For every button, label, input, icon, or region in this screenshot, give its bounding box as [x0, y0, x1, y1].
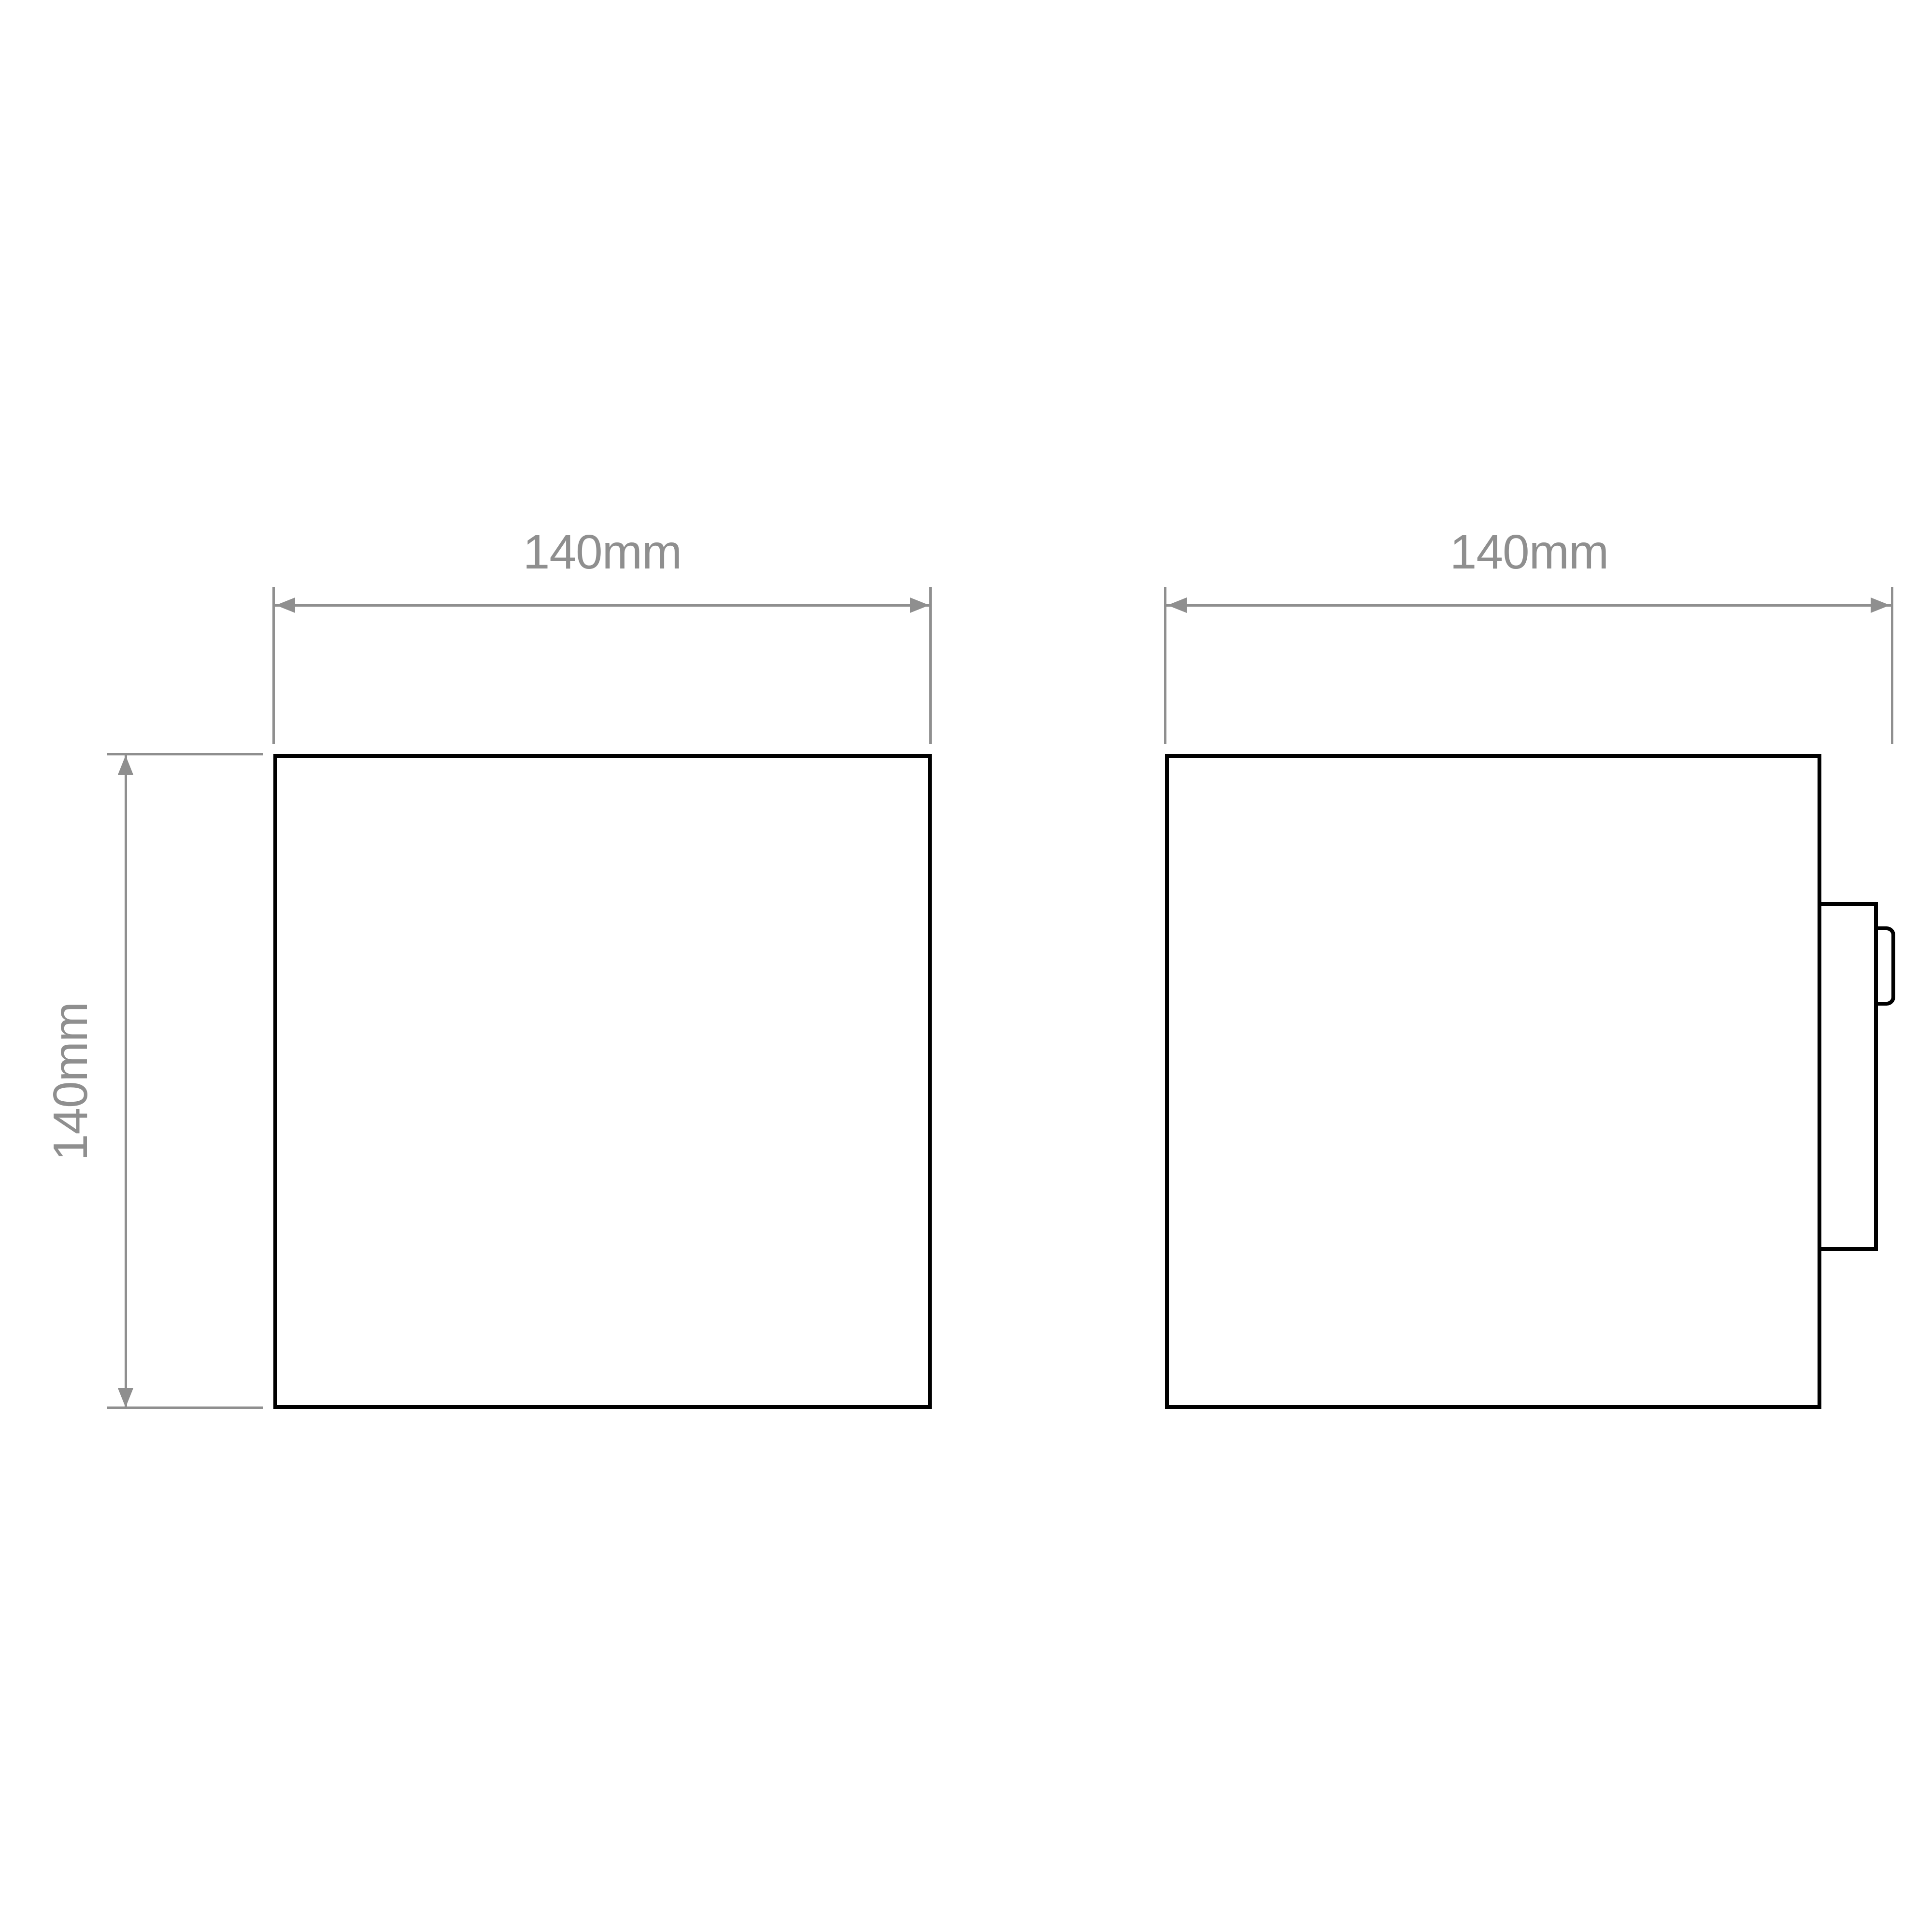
arrow-down-icon — [118, 1388, 133, 1407]
side-view-outline — [1165, 754, 1821, 1409]
depth-dimension-label: 140mm — [1384, 528, 1674, 576]
wall-bracket-outline — [1817, 902, 1878, 1251]
dimension-line — [125, 754, 127, 1408]
dimension-line — [273, 604, 931, 607]
dimension-line — [1165, 604, 1892, 607]
arrow-left-icon — [1167, 597, 1187, 613]
arrow-left-icon — [276, 597, 295, 613]
extension-line — [272, 587, 275, 744]
extension-line — [1164, 587, 1166, 744]
front-view-outline — [273, 754, 932, 1409]
extension-line — [929, 587, 932, 744]
arrow-right-icon — [910, 597, 929, 613]
width-dimension-label: 140mm — [457, 528, 747, 576]
arrow-right-icon — [1871, 597, 1890, 613]
arrow-up-icon — [118, 755, 133, 775]
extension-line — [1891, 587, 1893, 744]
height-dimension-label: 140mm — [46, 937, 95, 1226]
dimension-drawing: 140mm 140mm 140mm — [0, 0, 1932, 1932]
